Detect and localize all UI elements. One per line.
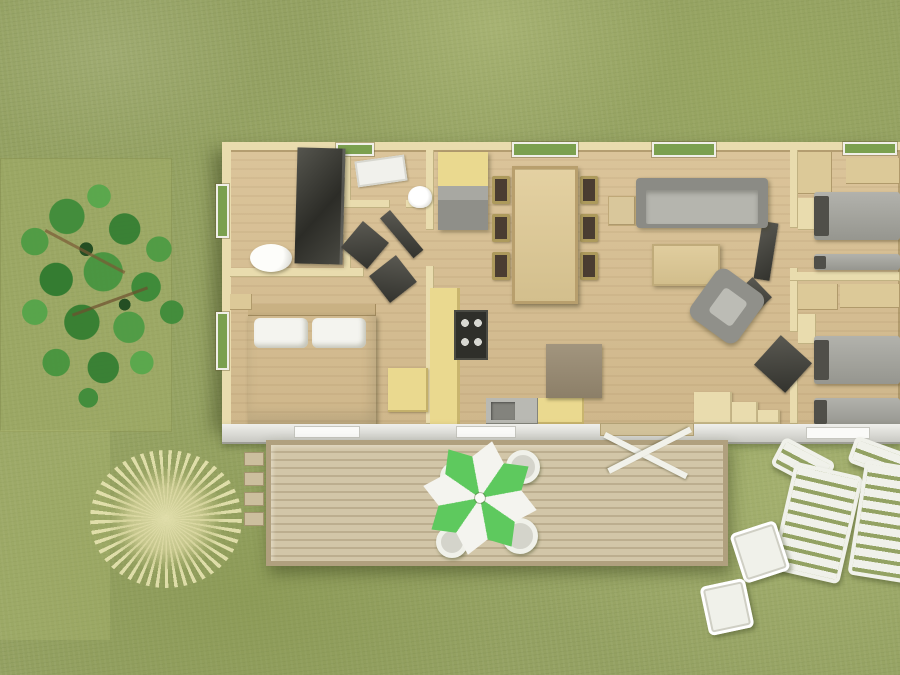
dining-chair	[492, 214, 510, 242]
bed-pillow	[254, 318, 308, 348]
bedroom-wardrobe	[388, 368, 428, 412]
toilet	[408, 186, 432, 208]
sink-basin	[491, 402, 515, 420]
bed-pillow-dark	[814, 196, 829, 236]
window-bathroom-west	[216, 184, 229, 238]
desk	[546, 344, 602, 398]
wall-hallway-a	[790, 150, 798, 228]
aerial-floorplan-render	[0, 0, 900, 675]
shower-cabin	[294, 147, 345, 264]
wall-wc-south-a	[344, 200, 390, 208]
step-shelf	[732, 402, 758, 424]
window-master-bedroom-west	[216, 312, 229, 370]
window-living	[652, 142, 716, 157]
dining-table	[512, 166, 578, 304]
dining-chair	[580, 176, 598, 204]
hob	[456, 312, 486, 358]
wall-between-twin-bedrooms	[790, 272, 900, 281]
deck-step	[244, 492, 264, 506]
sofa-seat	[646, 190, 758, 224]
bed-pillow-dark	[814, 256, 826, 269]
deck-step	[244, 512, 264, 526]
dry-bush	[90, 450, 242, 588]
twin2-closet	[798, 284, 838, 310]
dining-chair	[492, 252, 510, 280]
parasol-pole-cap	[475, 493, 485, 503]
facade-window	[456, 426, 516, 438]
facade-window	[294, 426, 360, 438]
twin2-head-shelf	[840, 284, 900, 308]
step-shelf	[758, 410, 780, 424]
dining-chair	[580, 252, 598, 280]
deck-step	[244, 452, 264, 466]
washbasin	[250, 244, 292, 272]
twin1-head-shelf	[846, 158, 900, 184]
window-dining	[512, 142, 578, 157]
tree	[0, 166, 206, 418]
dining-chair	[492, 176, 510, 204]
twin1-closet	[798, 152, 832, 194]
nightstand	[230, 294, 252, 310]
single-bed	[814, 254, 900, 270]
dining-chair	[580, 214, 598, 242]
fridge-cabinet	[438, 152, 488, 230]
side-table	[608, 196, 636, 226]
bed-pillow-dark	[814, 340, 829, 380]
bed-pillow	[312, 318, 366, 348]
step-shelf	[694, 392, 732, 424]
deck-step	[244, 472, 264, 486]
bed-pillow-dark	[814, 400, 827, 424]
wall-bedroom-north	[230, 268, 364, 277]
kitchen-counter-south	[538, 398, 584, 424]
lounge-side-table	[699, 578, 754, 636]
window-twin-bedroom	[843, 142, 897, 155]
